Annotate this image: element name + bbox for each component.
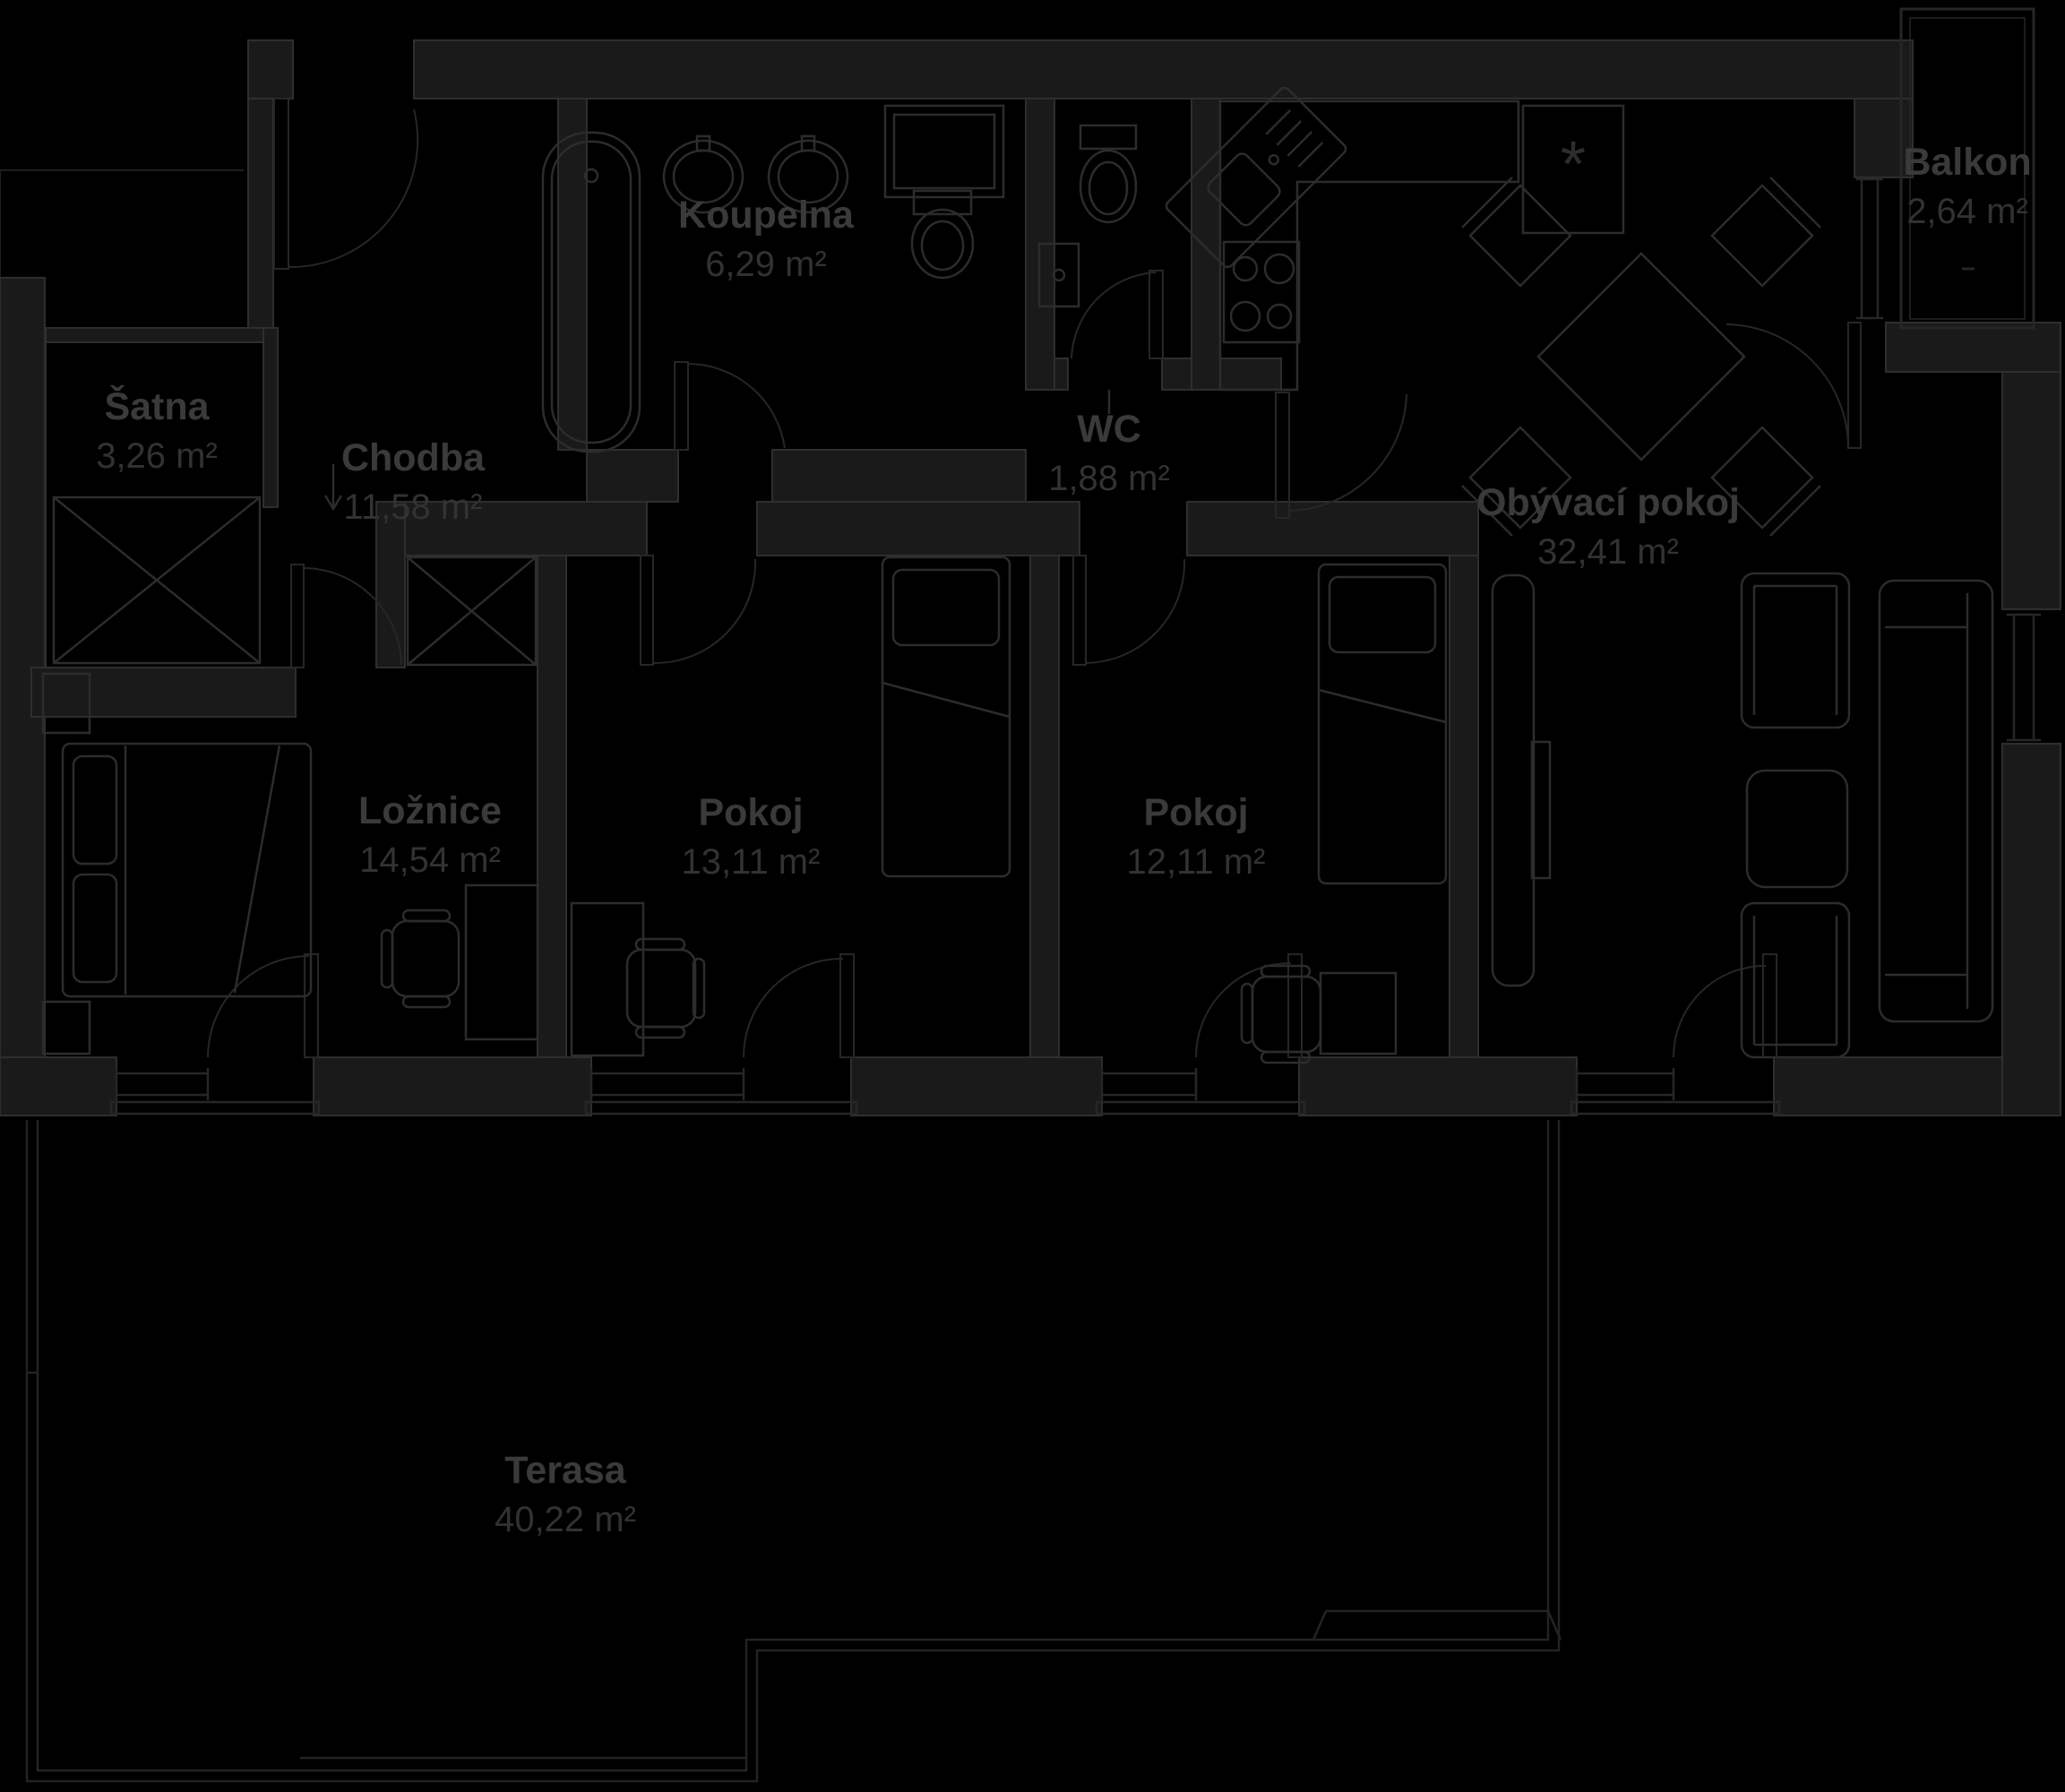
room-label-pokoj-2: Pokoj12,11 m²	[1127, 788, 1266, 886]
room-label-pokoj-1: Pokoj13,11 m²	[682, 788, 821, 886]
room-name: Pokoj	[682, 788, 821, 838]
room-area: 2,64 m²	[1903, 187, 2031, 236]
room-name: WC	[1048, 404, 1170, 454]
room-area: 11,58 m²	[341, 483, 485, 531]
room-area: 3,26 m²	[96, 432, 218, 480]
room-name: Balkon	[1903, 137, 2031, 187]
room-label-terasa: Terasa40,22 m²	[495, 1445, 636, 1544]
room-area: 32,41 m²	[1476, 528, 1740, 576]
room-area: 1,88 m²	[1048, 454, 1170, 503]
room-name: Koupelna	[678, 190, 854, 240]
room-area: 14,54 m²	[358, 836, 502, 884]
room-label-wc: WC1,88 m²	[1048, 404, 1170, 503]
room-name: Obývací pokoj	[1476, 478, 1740, 528]
room-area: 12,11 m²	[1127, 838, 1266, 886]
room-name: Šatna	[96, 382, 218, 432]
room-name: Chodba	[341, 433, 485, 483]
room-name: Ložnice	[358, 786, 502, 836]
room-name: Terasa	[495, 1445, 636, 1495]
room-labels: Šatna3,26 m² Chodba11,58 m² Koupelna6,29…	[0, 0, 2065, 1792]
room-label-balkon: Balkon2,64 m²	[1903, 137, 2031, 236]
room-area: 13,11 m²	[682, 838, 821, 886]
room-area: 40,22 m²	[495, 1495, 636, 1544]
room-area: 6,29 m²	[678, 240, 854, 289]
room-label-satna: Šatna3,26 m²	[96, 382, 218, 480]
room-label-obyvaci-pokoj: Obývací pokoj32,41 m²	[1476, 478, 1740, 576]
floor-plan: * Šatna3,26 m² Chodba11,58 m² Koupelna6,…	[0, 0, 2065, 1792]
room-label-chodba: Chodba11,58 m²	[341, 433, 485, 531]
room-name: Pokoj	[1127, 788, 1266, 838]
room-label-koupelna: Koupelna6,29 m²	[678, 190, 854, 289]
room-label-loznice: Ložnice14,54 m²	[358, 786, 502, 884]
